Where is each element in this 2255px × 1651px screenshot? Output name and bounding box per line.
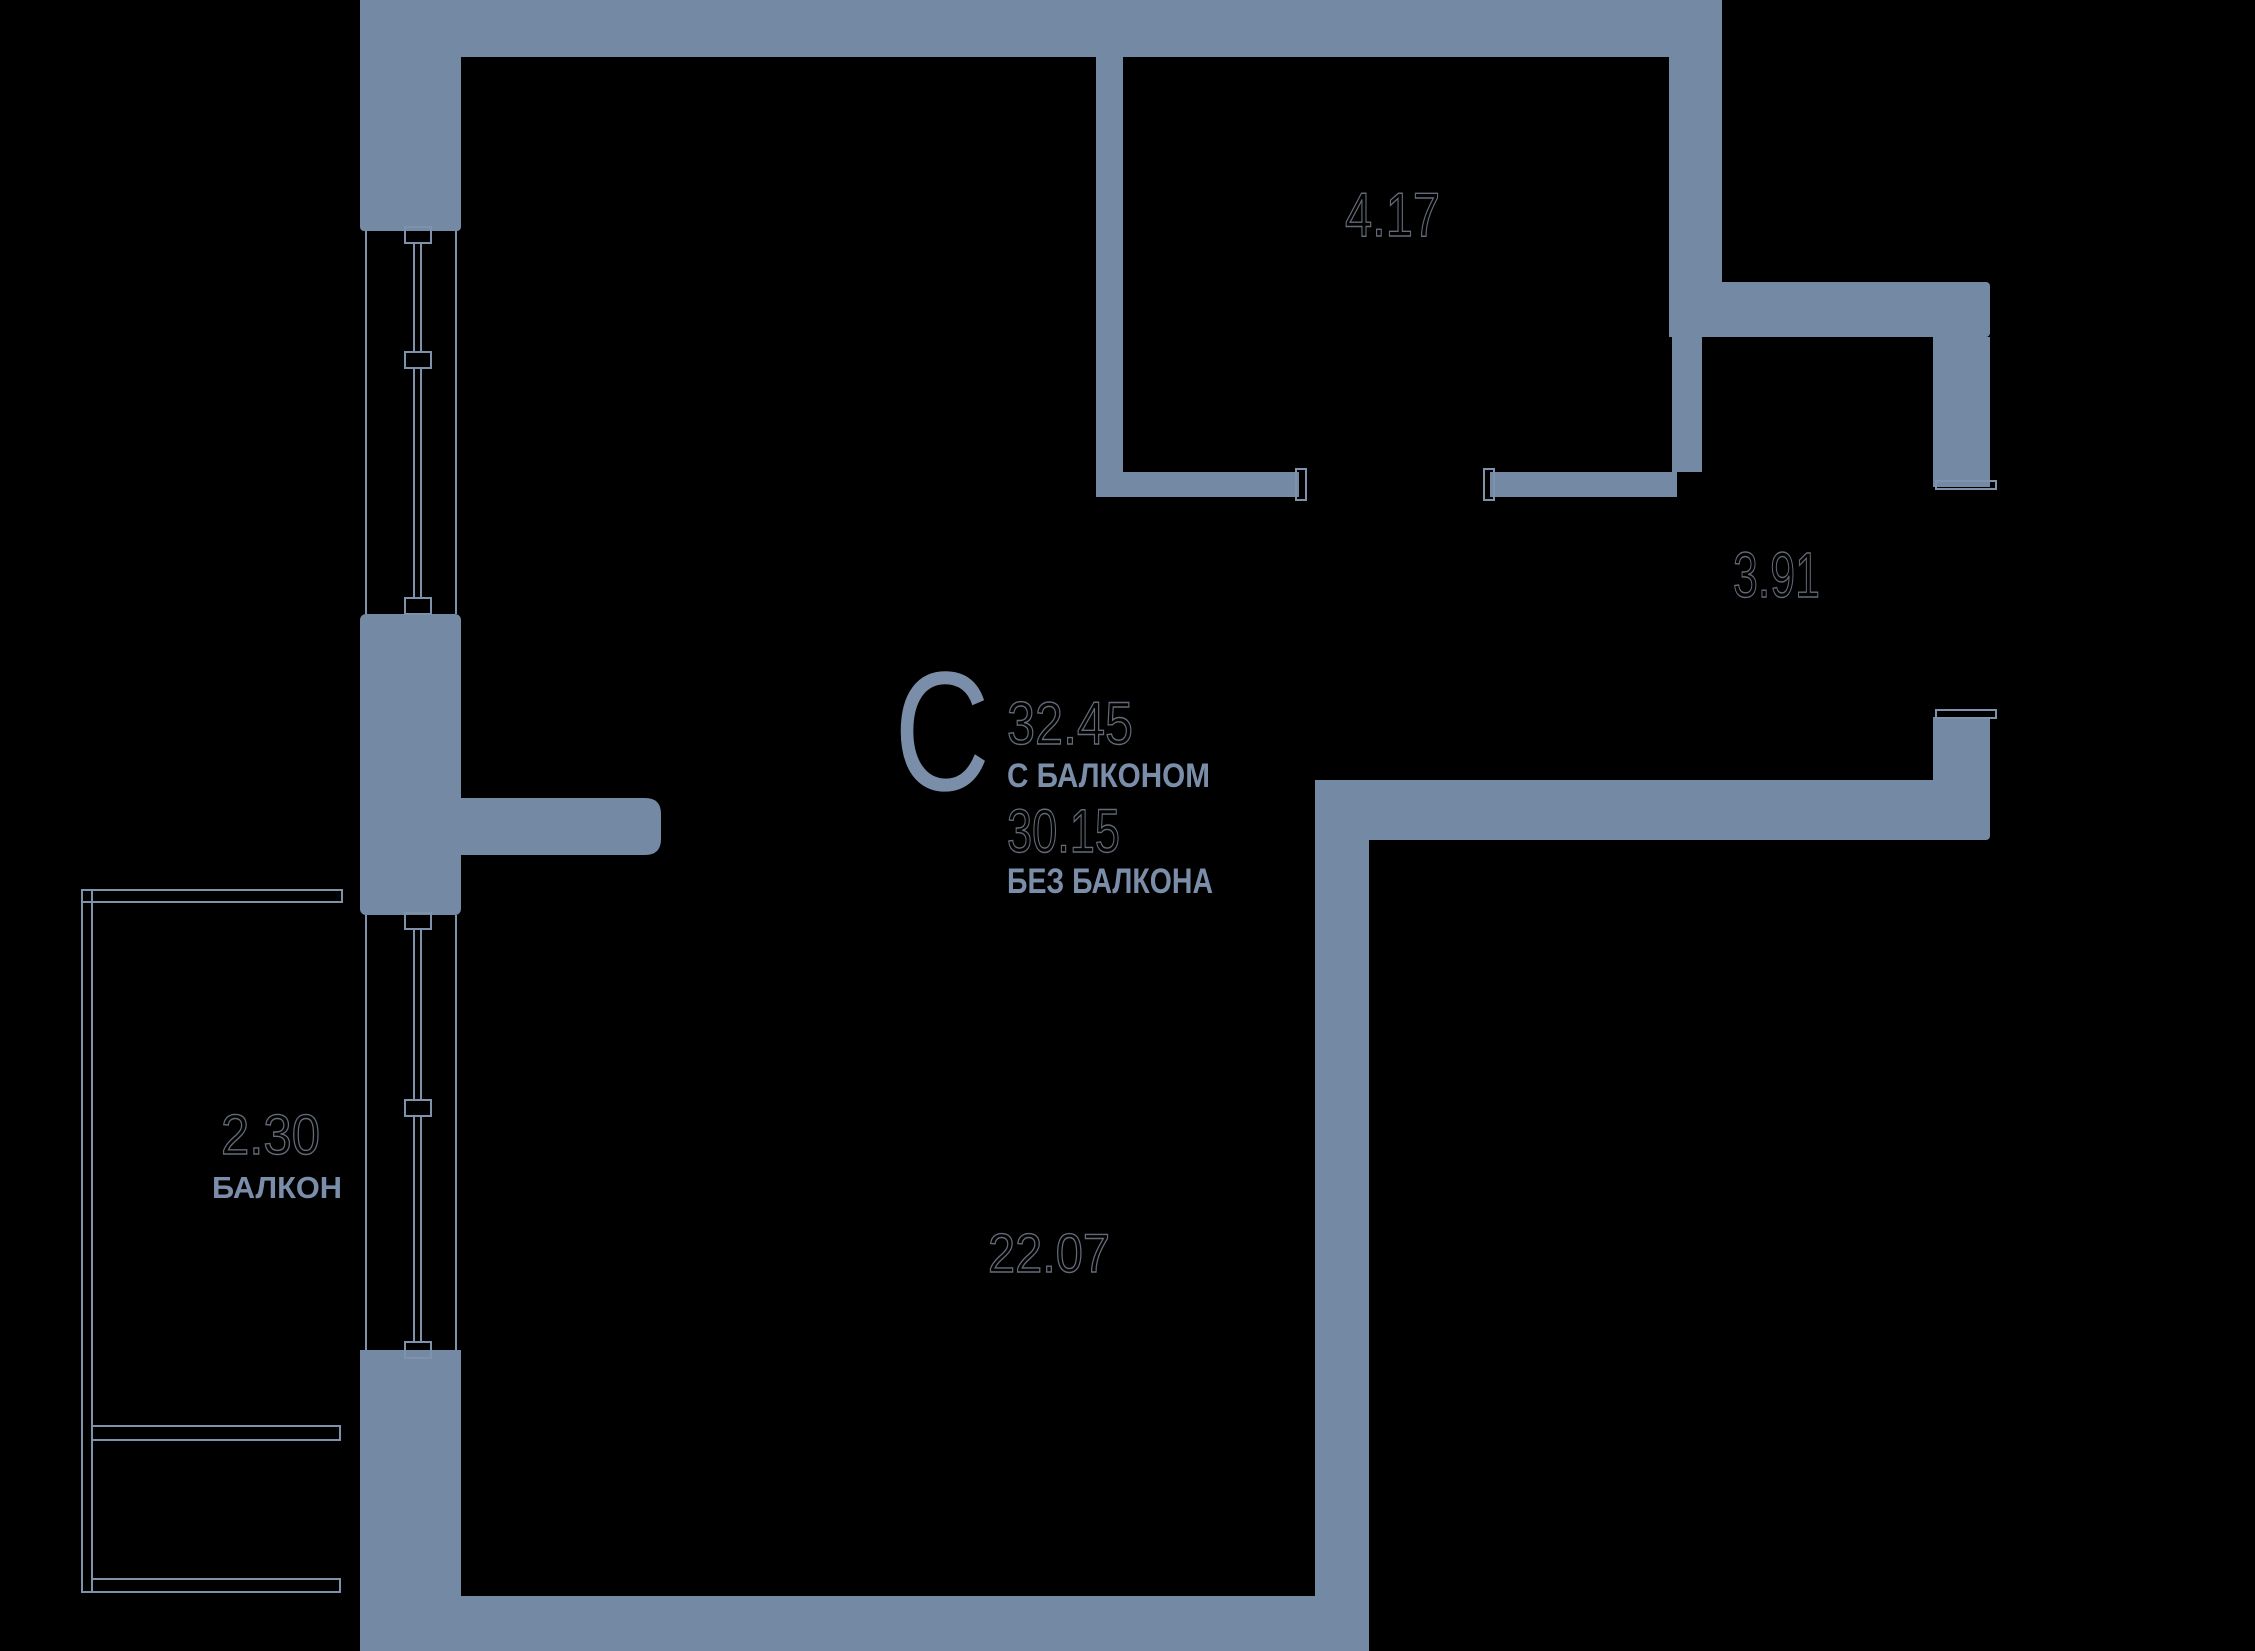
bathroom-area: 4.17: [1345, 181, 1440, 250]
window-upper-frame-mid: [405, 352, 431, 368]
wall-entry-lower: [1933, 717, 1990, 795]
wall-left-lower: [360, 1350, 461, 1651]
wall-bathroom-bottom-left: [1096, 472, 1299, 497]
with-balcony-label: С БАЛКОНОМ: [1007, 757, 1210, 795]
balcony-parapet-left: [82, 890, 92, 1592]
entrance-door-jamb-bottom: [1936, 710, 1996, 718]
living-room-area: 22.07: [988, 1222, 1110, 1284]
window-balcony-glass-2: [414, 1116, 421, 1342]
window-upper-glass-2: [414, 368, 421, 598]
wall-bathroom-right: [1669, 0, 1722, 337]
wall-top: [360, 0, 1722, 57]
wall-stub: [461, 798, 661, 855]
wall-bathroom-left: [1096, 57, 1123, 472]
hallway-area: 3.91: [1733, 539, 1820, 611]
balcony-parapet-top: [82, 890, 342, 902]
window-upper-glass-1: [414, 243, 421, 352]
balcony-parapet-middle: [92, 1426, 340, 1440]
without-balcony-label: БЕЗ БАЛКОНА: [1007, 862, 1213, 901]
wall-bottom: [460, 1596, 1369, 1651]
floor-plan-canvas: С С БАЛКОНОМ БЕЗ БАЛКОНА БАЛКОН 32.45 30…: [0, 0, 2255, 1651]
window-upper-frame-bottom: [405, 598, 431, 614]
window-balcony-frame-mid: [405, 1100, 431, 1116]
area-without-balcony: 30.15: [1007, 797, 1120, 865]
floor-plan: С С БАЛКОНОМ БЕЗ БАЛКОНА БАЛКОН 32.45 30…: [0, 0, 2255, 1651]
wall-step: [1315, 780, 1990, 840]
wall-right-lower: [1315, 780, 1369, 1651]
wall-riser: [1672, 337, 1702, 472]
balcony-parapet-bottom: [92, 1579, 340, 1592]
window-balcony-glass-1: [414, 929, 421, 1100]
wall-group: [360, 0, 1990, 1651]
apartment-type-letter: С: [894, 637, 990, 827]
balcony-room-label: БАЛКОН: [212, 1170, 342, 1205]
wall-bathroom-bottom-right: [1490, 472, 1677, 497]
wall-entry-upper: [1933, 337, 1990, 487]
area-with-balcony: 32.45: [1007, 690, 1133, 757]
window-balcony-frame-top: [405, 913, 431, 929]
wall-left-upper: [360, 0, 461, 231]
wall-left-middle: [360, 614, 461, 915]
balcony-area: 2.30: [221, 1103, 320, 1167]
